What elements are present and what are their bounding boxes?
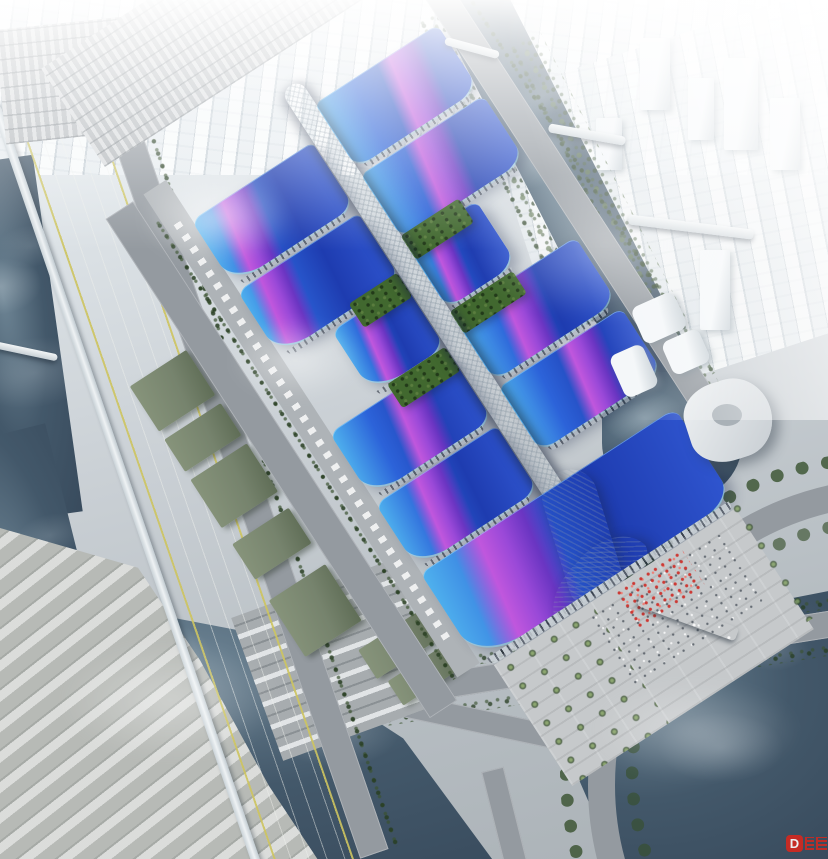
fog-patch xyxy=(60,640,280,760)
haze-right xyxy=(500,0,828,420)
watermark-logo-badge: D xyxy=(786,835,803,852)
watermark-letter: D xyxy=(790,836,799,851)
watermark: D xyxy=(786,835,827,852)
fog-patch xyxy=(590,680,800,780)
watermark-glyph xyxy=(805,837,814,850)
fog-patch xyxy=(230,320,360,400)
aerial-rendering-scene: D xyxy=(0,0,828,859)
watermark-glyph xyxy=(816,837,827,850)
